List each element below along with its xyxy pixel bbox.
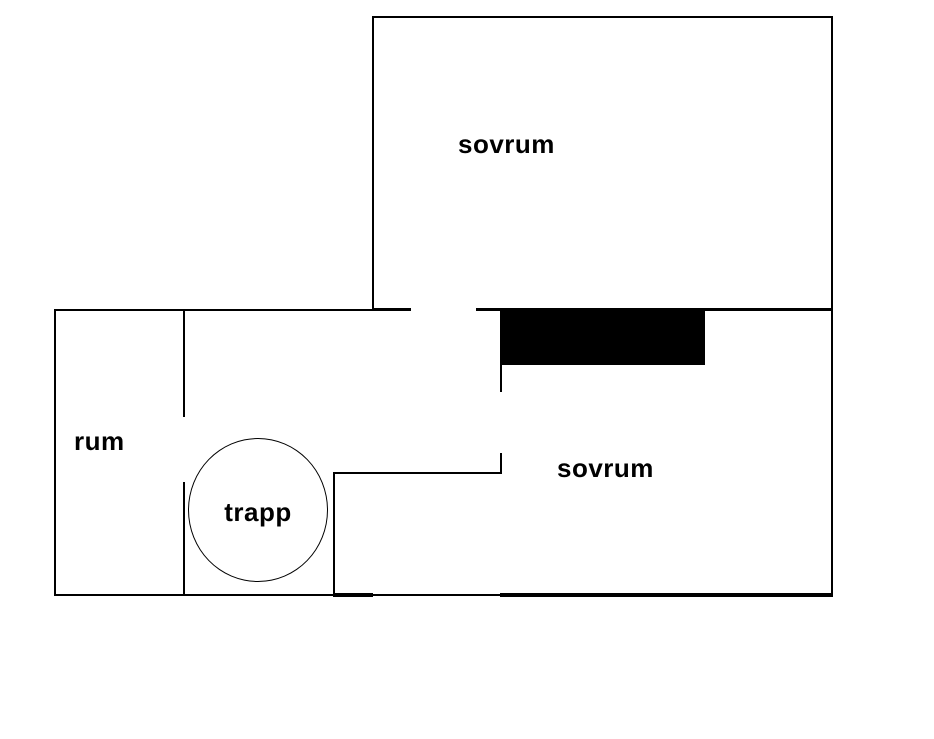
lower-block-wall-left <box>54 309 56 596</box>
lower-block-wall-right <box>831 309 833 596</box>
upper-bedroom-label: sovrum <box>458 131 555 157</box>
shared-wall-left-segment <box>54 309 372 311</box>
stairs-label: trapp <box>188 499 328 525</box>
shared-wall-left-overlap <box>372 308 411 311</box>
lower-block-wall-bottom-thick-a <box>333 593 373 597</box>
upper-bedroom-wall-left <box>372 16 374 310</box>
lower-bedroom-wall-lower <box>500 453 502 474</box>
upper-bedroom-wall-right <box>831 16 833 310</box>
filled-wall-block <box>501 310 705 365</box>
side-room-wall-lower <box>183 482 185 596</box>
upper-bedroom-wall-top <box>372 16 833 18</box>
lower-bedroom-label: sovrum <box>557 455 654 481</box>
stair-nook-wall-top <box>333 472 501 474</box>
lower-block-wall-bottom-thick-b <box>500 593 833 597</box>
side-room-wall-upper <box>183 310 185 417</box>
side-room-label: rum <box>74 428 125 454</box>
floorplan-canvas: sovrum sovrum rum trapp <box>0 0 934 739</box>
stair-nook-wall-left <box>333 472 335 596</box>
